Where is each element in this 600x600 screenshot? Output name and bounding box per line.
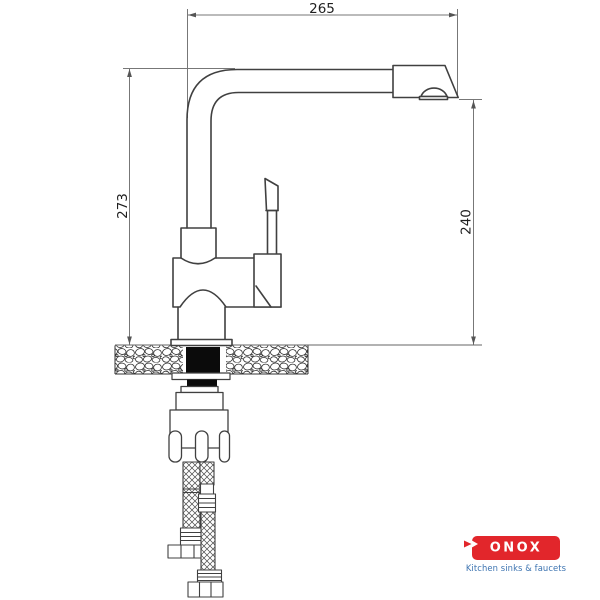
handle-stem [266, 211, 278, 256]
hose-right-braid-upper [200, 462, 214, 485]
hose-right-nut [188, 582, 223, 597]
base-column [178, 307, 225, 340]
konox-logo: ONOX Kitchen sinks & faucets [464, 536, 568, 573]
neck-collar [181, 228, 216, 258]
shank-sleeve [181, 387, 218, 393]
arrowhead [127, 69, 132, 77]
faucet-body [171, 228, 281, 346]
technical-drawing-svg: 265 273 240 [0, 0, 600, 600]
dimension-label-top: 265 [309, 1, 335, 17]
dimension-label-right: 240 [459, 209, 475, 235]
mounting-cylinder [176, 393, 223, 411]
nut-wing [169, 431, 182, 462]
arrowhead [127, 337, 132, 345]
hose-right-braid-lower [201, 512, 215, 570]
shank-upper [186, 347, 220, 373]
arrowhead [471, 337, 476, 345]
konox-logo-box: ONOX [472, 536, 560, 560]
handle-blade [265, 179, 278, 211]
spout-tube [187, 70, 395, 229]
mounting-hardware [169, 387, 230, 463]
dimension-label-left: 273 [115, 193, 131, 219]
shank-lower [187, 380, 217, 387]
konox-k-icon [464, 536, 479, 552]
aerator-base [420, 97, 448, 100]
dimension-right-height: 240 [459, 100, 483, 345]
valve-housing [254, 254, 281, 307]
supply-hoses [168, 462, 223, 597]
countertop-section [115, 345, 482, 374]
under-counter-washer [172, 373, 230, 380]
nut-wing [220, 431, 230, 462]
dimension-top-width: 265 [188, 1, 458, 118]
hose-left-braid [183, 462, 200, 530]
faucet-handle [265, 179, 278, 256]
konox-tagline: Kitchen sinks & faucets [464, 563, 568, 573]
hose-right-fitting [201, 484, 214, 494]
dimension-left-height: 273 [115, 69, 235, 345]
arrowhead [449, 13, 457, 18]
konox-brand-text: ONOX [490, 541, 543, 554]
faucet-drawing [168, 66, 458, 598]
base-flange [171, 340, 232, 346]
faucet-spec-drawing: 265 273 240 [0, 0, 600, 600]
arrowhead [471, 101, 476, 109]
nut-wing [196, 431, 209, 462]
faucet-spout [187, 66, 458, 229]
arrowhead [188, 13, 196, 18]
